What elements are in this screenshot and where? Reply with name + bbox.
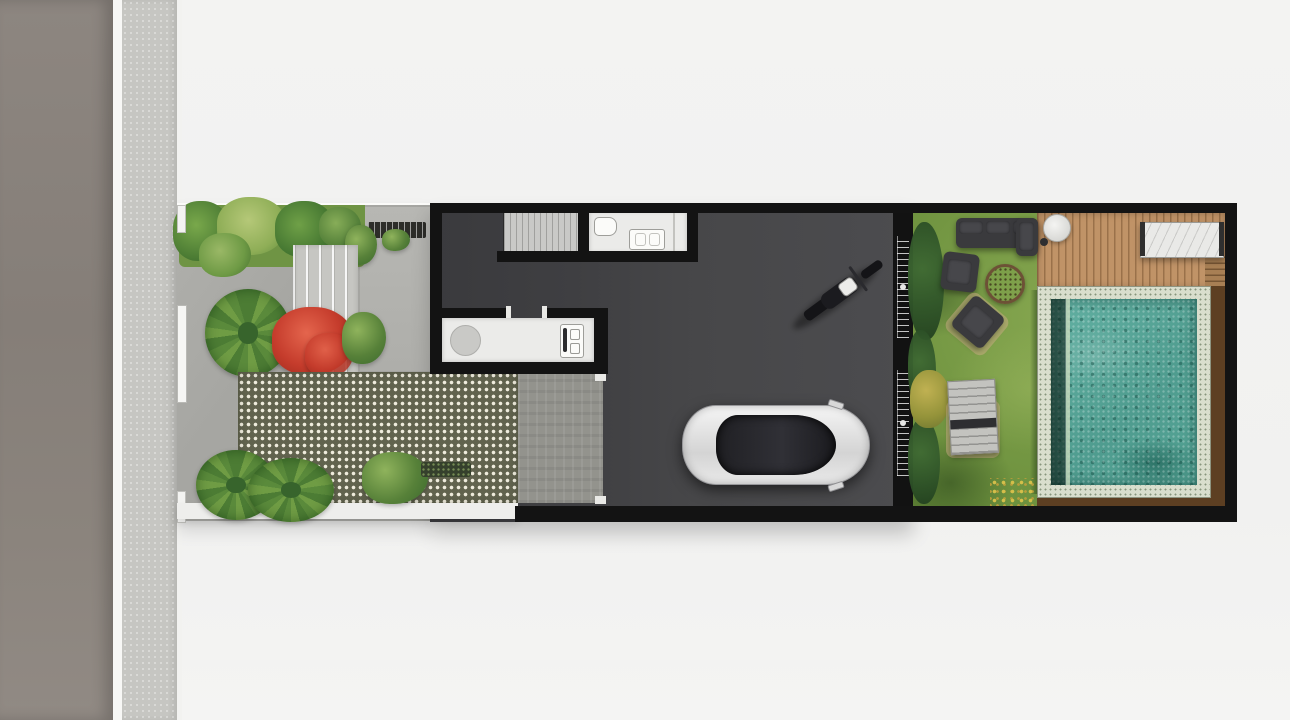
stair-wall xyxy=(497,251,589,262)
marble-dining-table xyxy=(1140,222,1224,258)
garage-apron-slab xyxy=(518,373,603,503)
street-strip xyxy=(0,0,115,720)
swimming-pool xyxy=(1037,286,1211,498)
palm-plant-icon xyxy=(248,458,334,522)
bathroom xyxy=(589,211,687,253)
kitchen-wall xyxy=(430,362,608,374)
tree-canopy-icon xyxy=(908,222,944,340)
pool-surround xyxy=(1209,286,1225,506)
front-outer-wall xyxy=(430,203,1237,213)
bottom-outer-wall xyxy=(515,506,1237,522)
tree-canopy-icon xyxy=(908,418,940,504)
gate-post xyxy=(177,205,186,233)
pool-steps xyxy=(1051,299,1066,485)
pool-step-edge xyxy=(1066,299,1070,485)
sofa-chaise xyxy=(1016,218,1038,256)
sidewalk-strip xyxy=(122,0,182,720)
street-edge-line xyxy=(113,0,122,720)
pool-water xyxy=(1051,299,1197,485)
car-roof-glass xyxy=(716,415,836,475)
kitchen-wall xyxy=(442,308,508,318)
building-left-wall xyxy=(430,203,442,374)
toilet-icon xyxy=(594,217,617,236)
door-jamb xyxy=(506,306,511,318)
bathroom-wall xyxy=(583,251,693,262)
white-sedan-car xyxy=(676,400,874,490)
staircase xyxy=(503,211,580,255)
sun-lounger xyxy=(947,379,999,455)
kitchen-round-table xyxy=(450,325,481,356)
kettle-icon xyxy=(1040,238,1048,246)
black-motorcycle xyxy=(788,246,898,332)
deck-mat xyxy=(1205,256,1225,288)
sink-basin xyxy=(635,233,646,246)
yellow-flower-patch xyxy=(990,478,1034,508)
shrub-icon xyxy=(199,233,251,277)
bathroom-wall xyxy=(687,211,698,262)
round-side-table xyxy=(1043,214,1071,242)
garage-door-jamb xyxy=(595,373,606,381)
site-plan-canvas xyxy=(0,0,1290,720)
outdoor-armchair xyxy=(940,251,980,293)
shower-glass-line xyxy=(673,213,675,251)
kitchen-stove xyxy=(560,324,584,358)
right-outer-wall xyxy=(1225,203,1237,522)
fire-pit xyxy=(985,264,1025,304)
hedge-strip xyxy=(421,462,471,477)
kitchen xyxy=(442,318,594,362)
sink-basin xyxy=(649,233,660,246)
front-gate xyxy=(177,305,187,403)
garage-door-jamb xyxy=(595,496,606,504)
